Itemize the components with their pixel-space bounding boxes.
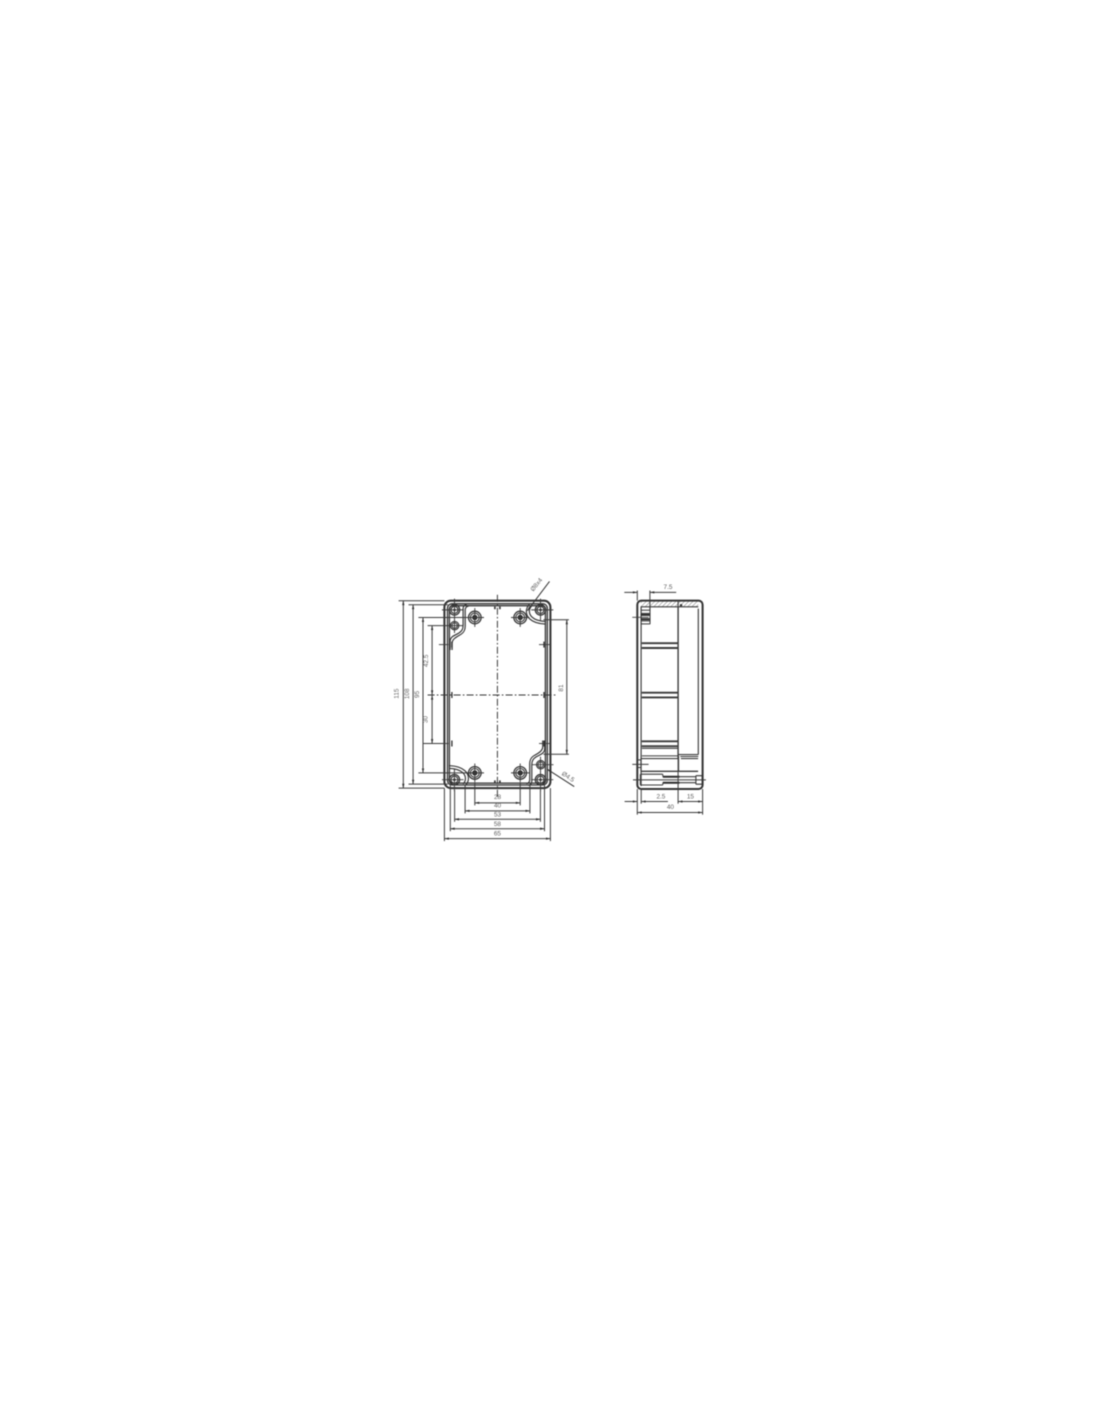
svg-text:53: 53 xyxy=(494,812,502,819)
svg-text:15: 15 xyxy=(687,793,695,800)
svg-text:Ø4.5: Ø4.5 xyxy=(560,770,576,784)
svg-text:40: 40 xyxy=(494,802,502,809)
svg-text:30: 30 xyxy=(423,716,430,724)
svg-text:58: 58 xyxy=(494,821,502,828)
svg-text:108: 108 xyxy=(404,688,411,699)
svg-text:95: 95 xyxy=(414,690,421,698)
svg-text:42.5: 42.5 xyxy=(423,654,430,667)
svg-text:40: 40 xyxy=(667,804,675,811)
svg-text:81: 81 xyxy=(558,684,565,692)
svg-text:115: 115 xyxy=(394,688,401,699)
svg-text:2.5: 2.5 xyxy=(656,793,665,800)
svg-text:28: 28 xyxy=(494,794,502,801)
svg-text:7.5: 7.5 xyxy=(664,584,673,591)
svg-text:65: 65 xyxy=(494,830,502,837)
